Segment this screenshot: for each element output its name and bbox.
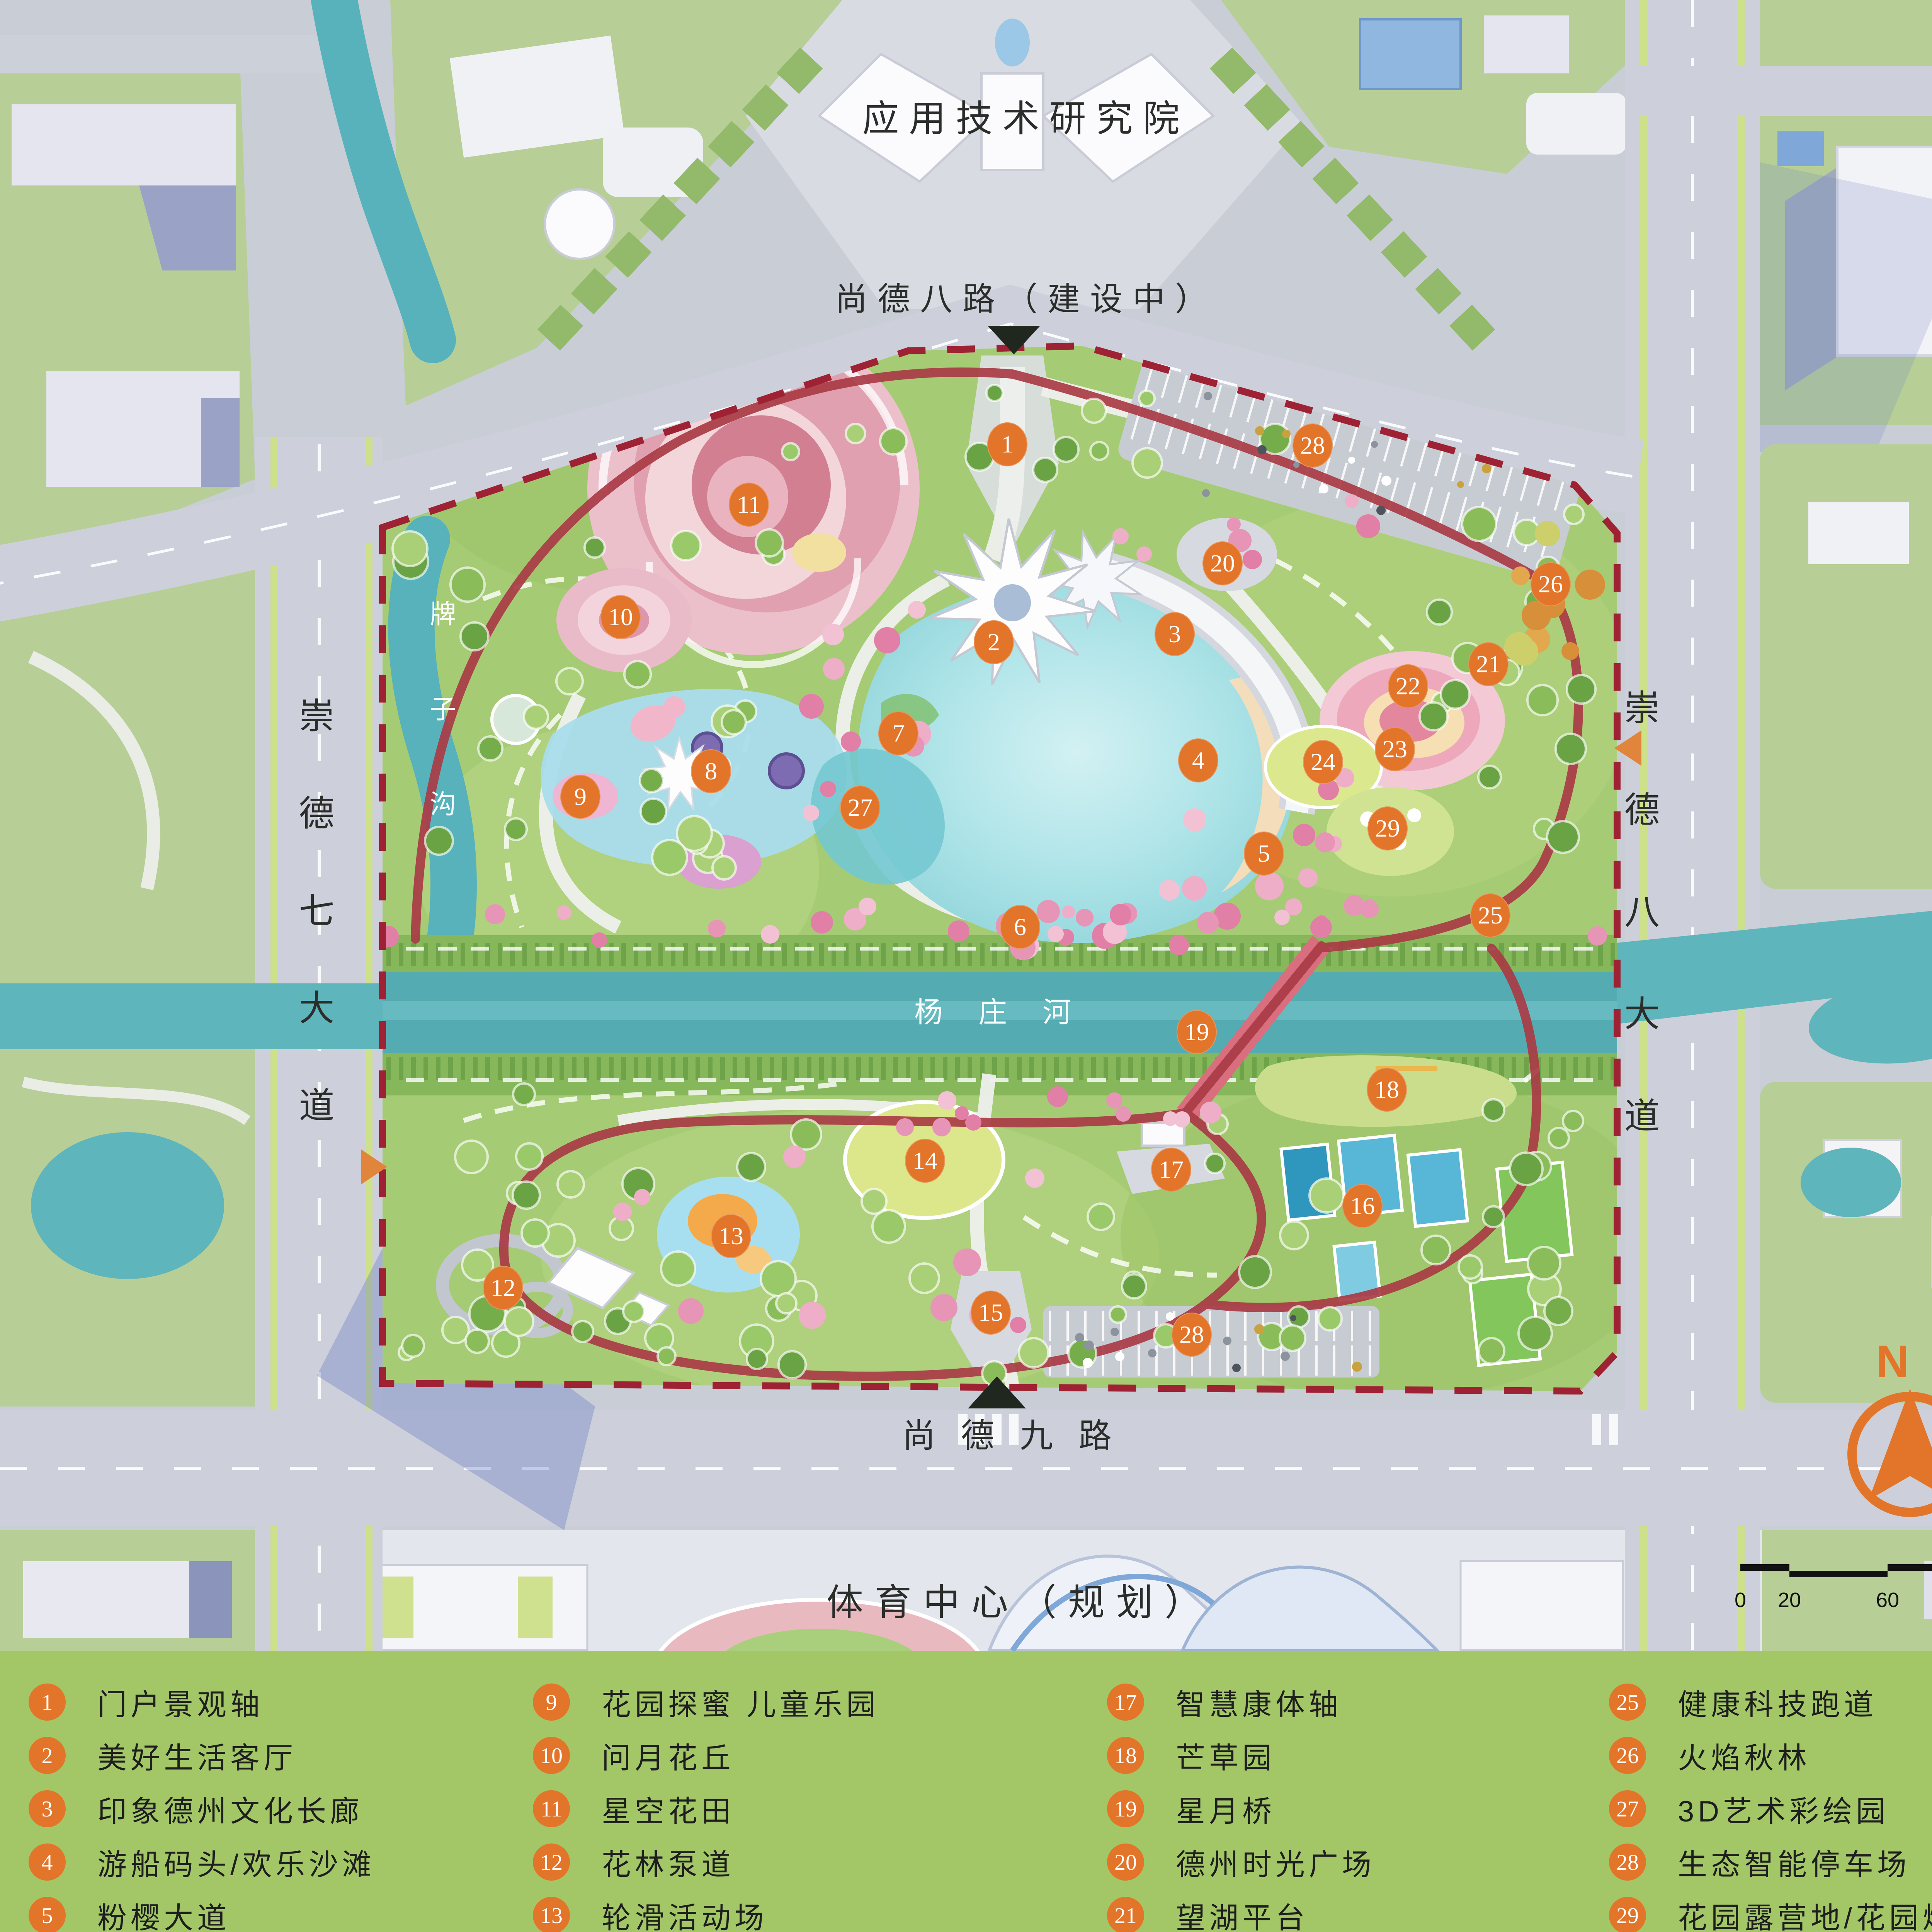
legend-num-18: 18 (1107, 1737, 1144, 1774)
legend-num-20: 20 (1107, 1844, 1144, 1881)
map-marker-18: 18 (1367, 1068, 1407, 1112)
legend-item-4: 游船码头/欢乐沙滩 (97, 1841, 375, 1883)
legend-item-2: 美好生活客厅 (97, 1734, 297, 1777)
legend-num-11: 11 (533, 1790, 570, 1827)
legend-item-21: 望湖平台 (1176, 1894, 1309, 1932)
legend-item-18: 芒草园 (1176, 1734, 1276, 1777)
legend-num-5: 5 (29, 1897, 66, 1932)
legend-item-9: 花园探蜜 儿童乐园 (602, 1681, 879, 1723)
legend-num-12: 12 (533, 1844, 570, 1881)
legend-item-20: 德州时光广场 (1176, 1841, 1375, 1883)
park-masterplan-poster: 应用技术研究院 尚德八路（建设中） 尚德九路 体育中心（规划） 崇德七大道 崇德… (0, 0, 1932, 1932)
map-marker-9: 9 (560, 775, 600, 819)
map-marker-10: 10 (600, 595, 641, 639)
label-creek: 牌子沟 (427, 600, 454, 885)
map-marker-8: 8 (691, 749, 731, 793)
map-marker-11: 11 (729, 483, 769, 527)
legend-item-28: 生态智能停车场 (1678, 1841, 1910, 1883)
north-letter: N (1876, 1339, 1909, 1384)
legend-item-3: 印象德州文化长廊 (97, 1787, 363, 1830)
map-marker-2: 2 (974, 620, 1014, 664)
map-marker-23: 23 (1375, 727, 1415, 771)
scale-label-20: 20 (1778, 1588, 1801, 1612)
legend-num-26: 26 (1609, 1737, 1646, 1774)
label-road-west: 崇德七大道 (296, 697, 331, 1184)
legend-num-29: 29 (1609, 1897, 1646, 1932)
legend-num-10: 10 (533, 1737, 570, 1774)
map-marker-6: 6 (1000, 905, 1040, 949)
map-marker-4: 4 (1178, 738, 1218, 782)
map-marker-15: 15 (971, 1291, 1011, 1335)
legend-num-4: 4 (29, 1844, 66, 1881)
map-marker-20: 20 (1202, 541, 1243, 585)
map-marker-29: 29 (1367, 806, 1408, 850)
map-marker-14: 14 (905, 1139, 945, 1183)
map-marker-5: 5 (1244, 832, 1284, 876)
legend-num-13: 13 (533, 1897, 570, 1932)
legend-item-17: 智慧康体轴 (1176, 1681, 1342, 1723)
label-river: 杨庄河 (914, 998, 1107, 1027)
map-marker-19: 19 (1177, 1010, 1217, 1054)
legend-num-1: 1 (29, 1684, 66, 1721)
map-marker-21: 21 (1468, 642, 1509, 686)
park-area (377, 301, 1662, 1403)
legend-item-1: 门户景观轴 (97, 1681, 264, 1723)
label-road-east: 崇德八大道 (1621, 689, 1656, 1199)
map-marker-1: 1 (987, 422, 1027, 466)
legend-item-27: 3D艺术彩绘园 (1678, 1787, 1889, 1830)
label-road-south: 尚德九路 (902, 1419, 1137, 1452)
legend-item-5: 粉樱大道 (97, 1894, 230, 1932)
map-marker-26: 26 (1531, 562, 1571, 606)
map-marker-24: 24 (1303, 740, 1343, 784)
legend-panel: 1门户景观轴2美好生活客厅3印象德州文化长廊4游船码头/欢乐沙滩5粉樱大道6赏樱… (0, 1651, 1932, 1932)
legend-num-28: 28 (1609, 1844, 1646, 1881)
label-road-north: 尚德八路（建设中） (835, 283, 1218, 315)
map-marker-3: 3 (1155, 612, 1195, 656)
legend-item-25: 健康科技跑道 (1678, 1681, 1877, 1723)
legend-num-2: 2 (29, 1737, 66, 1774)
map-marker-25: 25 (1470, 893, 1510, 937)
legend-item-13: 轮滑活动场 (602, 1894, 768, 1932)
map-marker-22: 22 (1388, 664, 1428, 708)
legend-num-9: 9 (533, 1684, 570, 1721)
map-marker-16: 16 (1342, 1184, 1383, 1228)
map-marker-17: 17 (1151, 1148, 1191, 1192)
map-marker-13: 13 (711, 1214, 751, 1258)
legend-num-19: 19 (1107, 1790, 1144, 1827)
map-marker-28-south: 28 (1172, 1313, 1212, 1357)
legend-num-17: 17 (1107, 1684, 1144, 1721)
map-marker-27: 27 (840, 786, 880, 830)
legend-item-11: 星空花田 (602, 1787, 735, 1830)
legend-num-25: 25 (1609, 1684, 1646, 1721)
legend-item-26: 火焰秋林 (1678, 1734, 1811, 1777)
label-institute: 应用技术研究院 (862, 101, 1189, 138)
legend-item-12: 花林泵道 (602, 1841, 735, 1883)
scale-label-0: 0 (1735, 1588, 1746, 1612)
map-marker-12: 12 (483, 1266, 523, 1310)
legend-item-29: 花园露营地/花园烧烤 (1678, 1894, 1932, 1932)
scale-label-60: 60 (1876, 1588, 1899, 1612)
legend-num-27: 27 (1609, 1790, 1646, 1827)
legend-item-19: 星月桥 (1176, 1787, 1276, 1830)
map-marker-28-north: 28 (1293, 423, 1333, 468)
legend-item-10: 问月花丘 (602, 1734, 735, 1777)
legend-num-21: 21 (1107, 1897, 1144, 1932)
map-marker-7: 7 (878, 711, 918, 755)
legend-num-3: 3 (29, 1790, 66, 1827)
label-sports-center: 体育中心（规划） (827, 1585, 1213, 1621)
